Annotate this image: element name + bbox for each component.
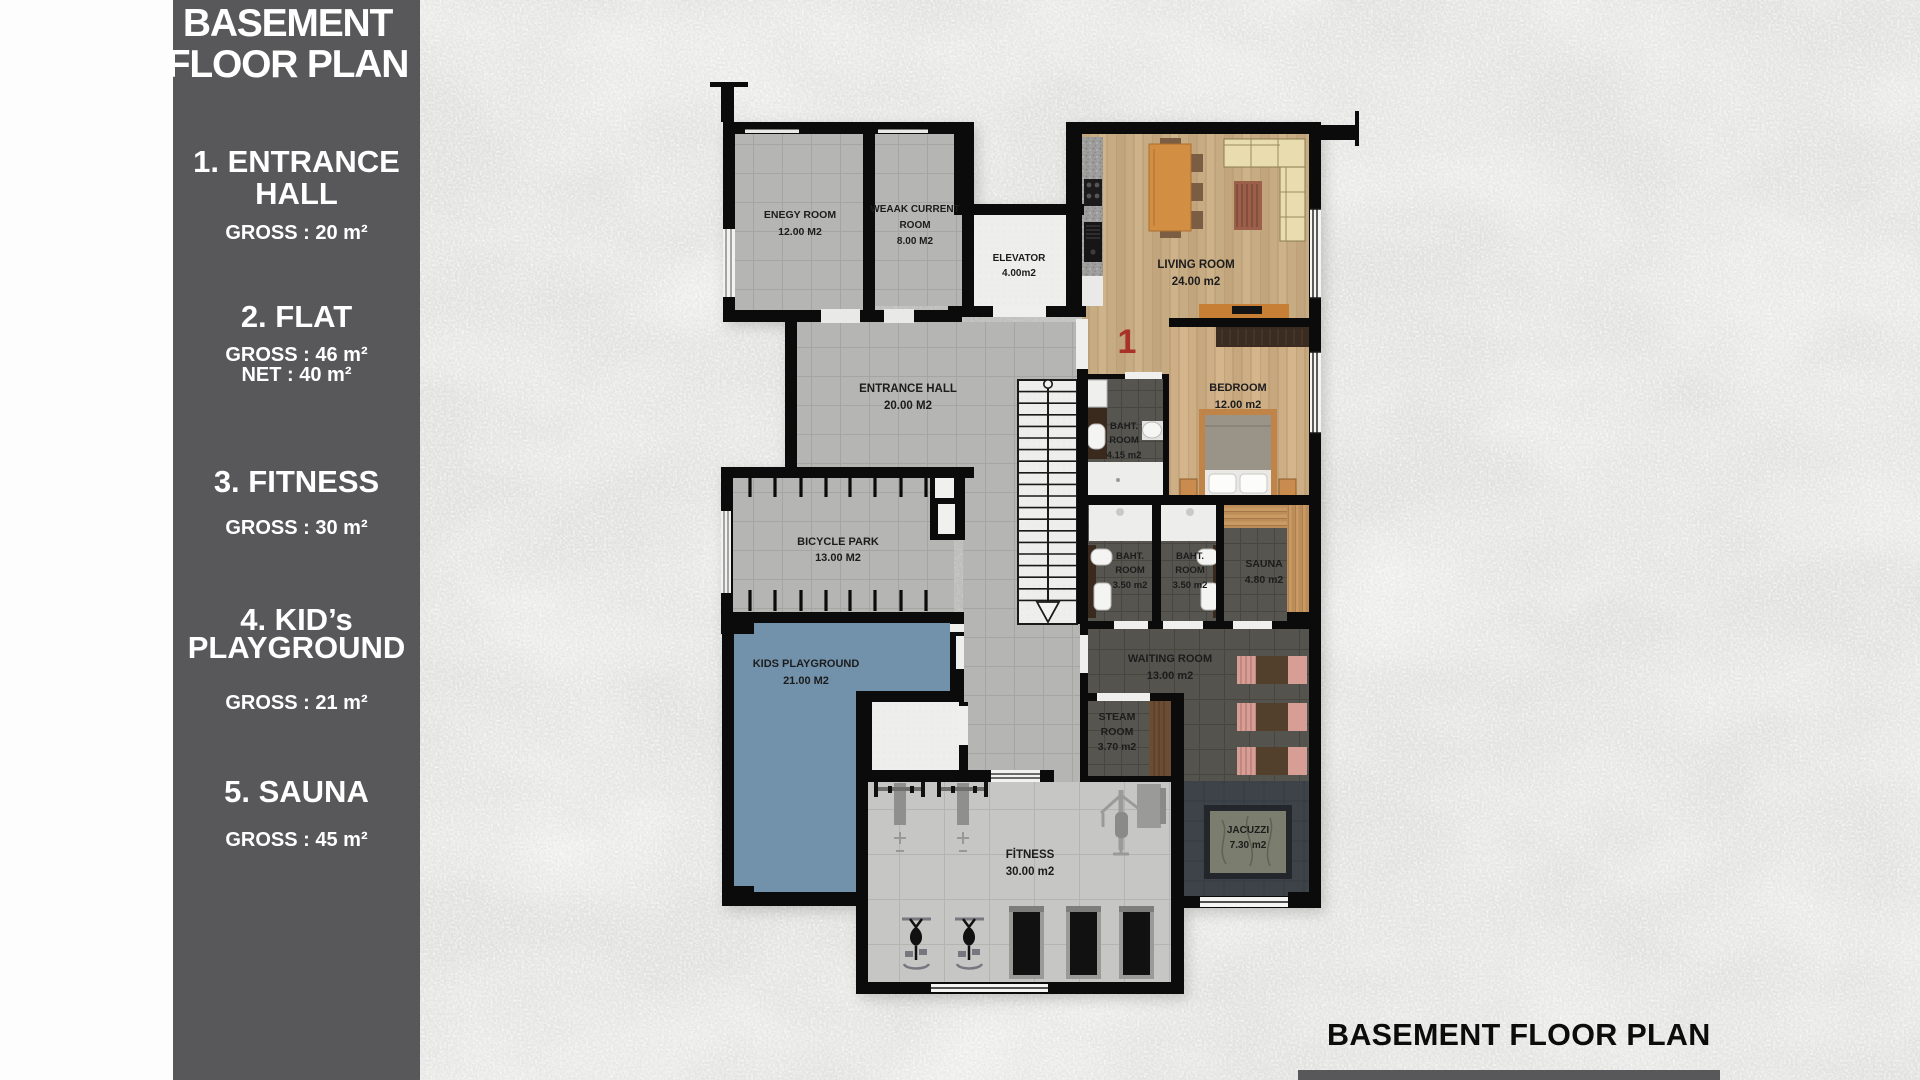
svg-text:BAHT.: BAHT. (1176, 551, 1204, 562)
svg-text:1: 1 (1118, 323, 1137, 361)
svg-text:ENEGY ROOM: ENEGY ROOM (764, 209, 836, 221)
svg-text:ROOM: ROOM (899, 220, 930, 231)
svg-text:8.00 M2: 8.00 M2 (897, 236, 934, 247)
svg-text:3.70 m2: 3.70 m2 (1098, 741, 1137, 753)
svg-text:FİTNESS: FİTNESS (1006, 848, 1055, 861)
svg-text:ENTRANCE HALL: ENTRANCE HALL (859, 383, 957, 395)
svg-text:ROOM: ROOM (1175, 565, 1205, 576)
svg-text:BICYCLE PARK: BICYCLE PARK (797, 536, 879, 548)
svg-text:12.00 m2: 12.00 m2 (1215, 399, 1261, 411)
svg-text:3.50 m2: 3.50 m2 (1113, 580, 1148, 591)
svg-text:BAHT.: BAHT. (1116, 551, 1144, 562)
svg-text:ROOM: ROOM (1115, 565, 1145, 576)
svg-text:4.00m2: 4.00m2 (1002, 268, 1036, 279)
svg-text:7.30 m2: 7.30 m2 (1230, 840, 1267, 851)
svg-text:ROOM: ROOM (1101, 726, 1134, 738)
svg-text:WAITING ROOM: WAITING ROOM (1128, 653, 1212, 665)
svg-text:4.80 m2: 4.80 m2 (1245, 574, 1284, 586)
svg-text:21.00 M2: 21.00 M2 (783, 675, 829, 687)
svg-text:JACUZZI: JACUZZI (1227, 825, 1269, 836)
svg-text:12.00 M2: 12.00 M2 (778, 226, 822, 238)
svg-text:20.00 M2: 20.00 M2 (884, 400, 932, 412)
svg-text:STEAM: STEAM (1099, 711, 1136, 723)
svg-text:KIDS PLAYGROUND: KIDS PLAYGROUND (753, 658, 860, 670)
svg-text:13.00 m2: 13.00 m2 (1147, 670, 1193, 682)
svg-text:WEAAK CURRENT: WEAAK CURRENT (870, 204, 959, 215)
svg-text:ROOM: ROOM (1109, 435, 1139, 446)
svg-text:BAHT.: BAHT. (1110, 421, 1138, 432)
svg-text:ELEVATOR: ELEVATOR (993, 253, 1047, 264)
svg-text:BEDROOM: BEDROOM (1209, 382, 1266, 394)
svg-text:30.00 m2: 30.00 m2 (1006, 866, 1055, 878)
svg-text:3.50 m2: 3.50 m2 (1173, 580, 1208, 591)
svg-text:SAUNA: SAUNA (1245, 558, 1283, 570)
svg-text:4.15 m2: 4.15 m2 (1107, 450, 1142, 461)
svg-text:13.00 M2: 13.00 M2 (815, 552, 861, 564)
svg-text:LIVING ROOM: LIVING ROOM (1157, 259, 1234, 271)
svg-text:24.00 m2: 24.00 m2 (1172, 276, 1221, 288)
